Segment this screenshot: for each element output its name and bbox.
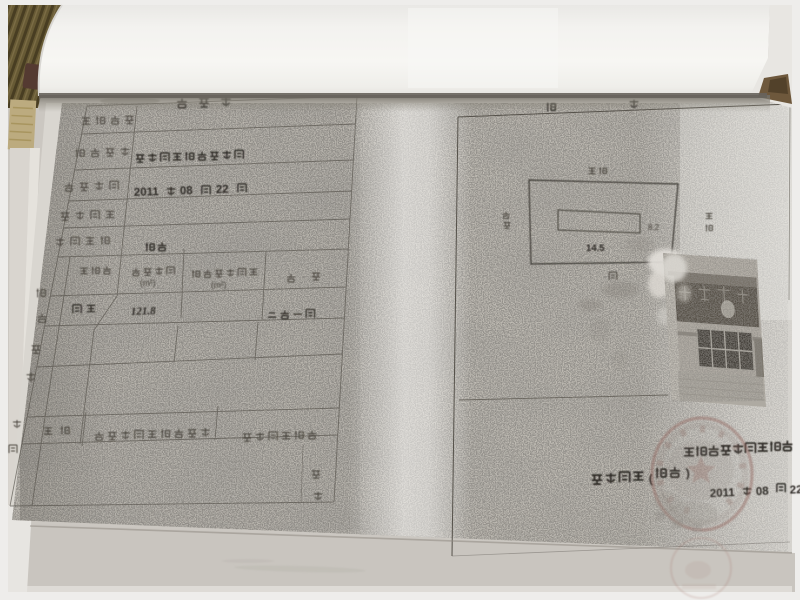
svg-text:(m²): (m²) [211,279,227,290]
svg-text:08: 08 [180,185,194,197]
svg-text:22: 22 [216,184,229,196]
svg-text:2011: 2011 [134,186,160,199]
svg-text:(m²): (m²) [140,277,156,288]
svg-text:22: 22 [790,484,800,497]
svg-text:8.2: 8.2 [648,223,660,232]
svg-text:121.8: 121.8 [131,305,157,318]
svg-text:08: 08 [756,486,770,499]
svg-text:14.5: 14.5 [586,243,605,254]
